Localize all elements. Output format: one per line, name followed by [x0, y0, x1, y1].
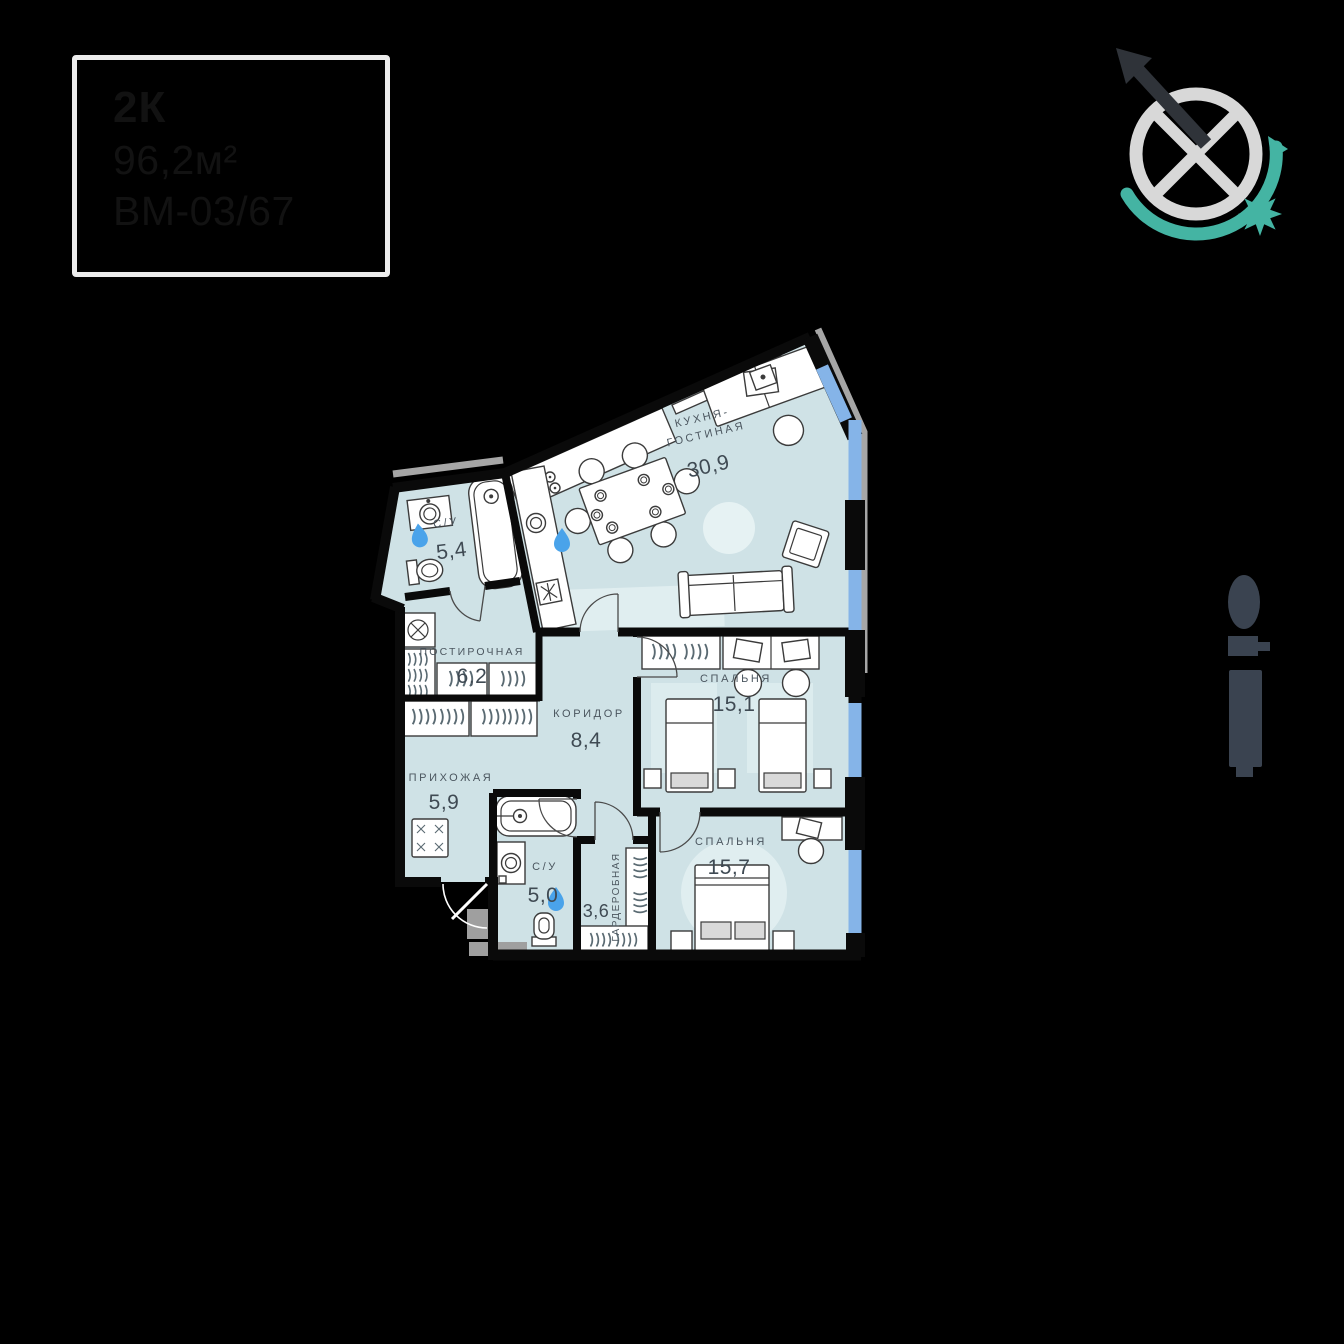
toilet-icon [532, 913, 556, 946]
room-area: 5,4 [435, 538, 468, 565]
room-area: 3,6 [583, 901, 610, 921]
nightstand [644, 769, 661, 788]
compass-icon [1108, 42, 1298, 247]
sink-icon [497, 842, 525, 884]
building-block-tall [1229, 670, 1262, 767]
kitchen-sink-icon [527, 514, 546, 533]
badge-unit-code: ВМ-03/67 [113, 186, 385, 237]
room-area: 8,4 [571, 729, 602, 752]
room-name: ПРИХОЖАЯ [409, 772, 494, 784]
desk-chair [783, 670, 810, 697]
room-area: 15,1 [713, 693, 756, 716]
room-area: 5,9 [429, 791, 460, 814]
room-name: СПАЛЬНЯ [700, 673, 772, 685]
washing-machine-icon [401, 613, 435, 647]
room-name: ГАРДЕРОБНАЯ [611, 852, 622, 941]
floor-plan: КУХНЯ- ГОСТИНАЯ 30,9 С/У 5,4 ПОСТИРОЧНАЯ… [355, 325, 895, 985]
desk-chair [799, 839, 824, 864]
building-block-small [1228, 636, 1270, 656]
room-area: 6,2 [457, 665, 488, 688]
apartment-badge: 2К 96,2м² ВМ-03/67 [72, 55, 390, 277]
building-block-foot [1236, 767, 1253, 777]
storage-rack [489, 663, 537, 696]
single-bed [666, 699, 713, 792]
laptop-icon [782, 639, 810, 661]
nightstand [671, 931, 692, 951]
room-name: С/У [532, 861, 558, 873]
nightstand [814, 769, 831, 788]
room-area: 15,7 [708, 856, 751, 879]
room-label-bathroom-2: С/У 5,0 [528, 861, 559, 907]
room-area: 5,0 [528, 884, 559, 907]
room-name: СПАЛЬНЯ [695, 836, 767, 848]
room-name: ПОСТИРОЧНАЯ [420, 646, 525, 658]
hob-icon [536, 579, 562, 605]
single-bed [759, 699, 806, 792]
sun-icon [1238, 192, 1282, 236]
building-tower-oval [1228, 575, 1260, 629]
room-name: КОРИДОР [553, 708, 625, 720]
bathtub-icon [496, 796, 576, 836]
badge-total-area: 96,2м² [113, 135, 385, 186]
nightstand [773, 931, 794, 951]
shoe-cabinet [412, 819, 448, 857]
compass-dial [1136, 94, 1256, 214]
nightstand [718, 769, 735, 788]
badge-rooms-type: 2К [113, 82, 385, 135]
storage-rack [471, 701, 537, 736]
building-position-indicator [1218, 572, 1274, 782]
laptop-icon [733, 639, 762, 662]
